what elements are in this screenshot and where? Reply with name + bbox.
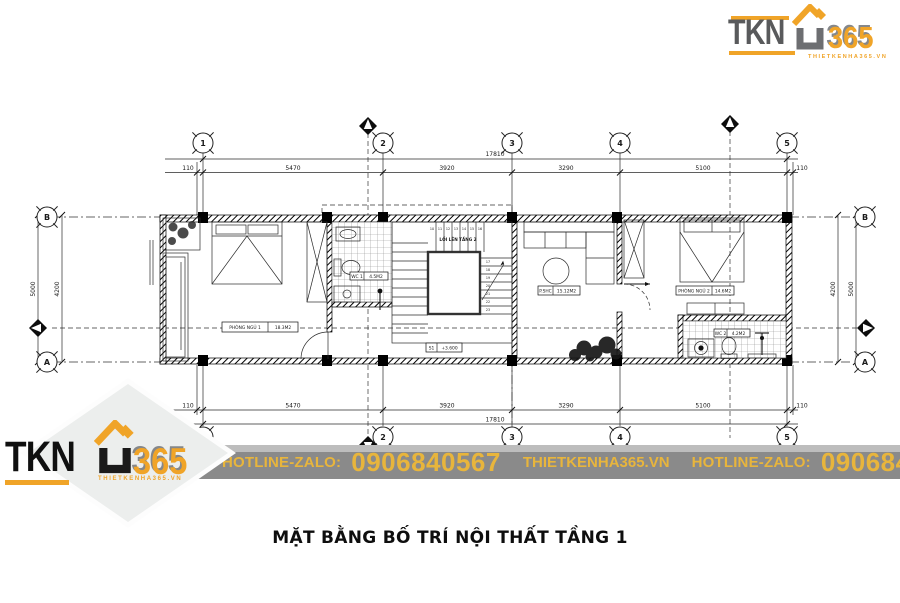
logo-tagline: THIETKENHA365.VN — [808, 54, 887, 60]
round-table-icon — [543, 258, 569, 284]
svg-text:WC 1: WC 1 — [351, 274, 363, 280]
wardrobe-icon — [624, 220, 644, 278]
hotline-label: HOTLINE-ZALO: — [222, 454, 341, 471]
svg-text:3: 3 — [509, 139, 515, 148]
hotline-phone: 0906840567 — [821, 447, 900, 478]
svg-text:S1: S1 — [429, 346, 435, 352]
svg-text:1: 1 — [200, 139, 206, 148]
logo-tkn-text: TKN — [5, 436, 75, 479]
hotline-label: HOTLINE-ZALO: — [692, 454, 811, 471]
dim-seg: 3290 — [558, 165, 573, 172]
planter-icon — [163, 218, 200, 250]
staircase: 10 11 12 13 14 15 16 17 18 19 20 21 22 2… — [392, 222, 512, 352]
plants-icon — [569, 337, 622, 362]
dim-seg: 5470 — [285, 403, 300, 410]
wardrobe-icon — [163, 253, 188, 361]
svg-text:14: 14 — [462, 227, 466, 231]
side-gate — [150, 240, 153, 285]
room-label: WC 2 4.2M2 — [714, 329, 750, 337]
svg-text:17: 17 — [486, 260, 490, 264]
room-label: P.SHC 15.12M2 — [538, 286, 580, 295]
door-arc — [624, 282, 650, 310]
svg-text:14.6M2: 14.6M2 — [715, 288, 732, 294]
logo-tagline: THIETKENHA365.VN — [98, 476, 182, 482]
stair-direction-label: LỐI LÊN TẦNG 2 — [439, 237, 476, 242]
dim-seg: 3920 — [439, 165, 454, 172]
dim-seg: 110 — [796, 165, 808, 172]
dim-right-outer: 5000 — [848, 281, 855, 296]
level-label: S1 +3.600 — [426, 343, 462, 352]
logo-365-text: 365 — [828, 22, 874, 53]
dim-seg: 110 — [182, 403, 194, 410]
svg-text:15: 15 — [470, 227, 474, 231]
dim-total-bottom: 17810 — [485, 417, 504, 424]
house-icon — [94, 420, 136, 476]
wc2: WC 2 4.2M2 — [683, 321, 786, 359]
stair-arrow — [482, 261, 504, 300]
svg-text:WC 2: WC 2 — [715, 331, 727, 337]
hotline-banner: HOTLINE-ZALO: 0906840567 THIETKENHA365.V… — [150, 445, 900, 479]
dim-seg: 3290 — [558, 403, 573, 410]
logo-tkn-text: TKN — [728, 15, 785, 50]
dim-right-inner: 4200 — [830, 281, 837, 296]
drawing-title: MẶT BẰNG BỐ TRÍ NỘI THẤT TẦNG 1 — [0, 528, 900, 548]
svg-text:4.2M2: 4.2M2 — [732, 331, 746, 337]
dimensions-bottom: 110 5470 3920 3290 5100 110 17810 — [165, 403, 808, 428]
svg-text:22: 22 — [486, 300, 490, 304]
svg-text:4: 4 — [617, 433, 623, 442]
logo-365-text: 365 — [133, 443, 187, 480]
logo-bar — [729, 51, 795, 55]
dim-seg: 110 — [796, 403, 808, 410]
svg-text:11: 11 — [438, 227, 442, 231]
sofa-icon — [524, 222, 614, 284]
svg-text:18: 18 — [486, 268, 490, 272]
bed-icon — [680, 218, 744, 282]
common-room: P.SHC 15.12M2 — [524, 222, 622, 362]
svg-text:2: 2 — [380, 433, 386, 442]
brand-logo-top-right: TKN 365 THIETKENHA365.VN — [720, 4, 900, 66]
bedroom2: PHÒNG NGỦ 2 14.6M2 — [624, 218, 744, 314]
svg-text:5: 5 — [784, 433, 790, 442]
svg-text:23: 23 — [486, 308, 490, 312]
brand-logo-bottom-left: TKN 365 THIETKENHA365.VN — [2, 416, 222, 496]
bed-icon — [212, 222, 282, 284]
stair-treads-left — [392, 243, 428, 333]
dim-total-top: 17810 — [485, 151, 504, 158]
svg-text:5: 5 — [784, 139, 790, 148]
svg-text:10: 10 — [430, 227, 434, 231]
bedroom1: PHÒNG NGỦ 1 18.3M2 — [163, 218, 328, 361]
dim-seg: 5100 — [695, 165, 710, 172]
website-text: THIETKENHA365.VN — [523, 454, 670, 471]
dim-left-outer: 5000 — [30, 281, 37, 296]
svg-text:19: 19 — [486, 276, 490, 280]
wc1: WC 1 4.5M2 — [332, 222, 392, 310]
dim-seg: 5470 — [285, 165, 300, 172]
wardrobe2-icon — [307, 222, 327, 302]
dim-seg: 110 — [182, 165, 194, 172]
door-arc — [301, 332, 328, 359]
svg-text:13: 13 — [454, 227, 458, 231]
svg-text:15.12M2: 15.12M2 — [557, 288, 576, 294]
svg-text:12: 12 — [446, 227, 450, 231]
svg-text:B: B — [44, 213, 50, 222]
svg-text:B: B — [862, 213, 868, 222]
dimensions-top: 17810 110 5470 3920 3290 5100 110 — [165, 151, 808, 176]
svg-text:18.3M2: 18.3M2 — [275, 325, 292, 331]
svg-text:P.SHC: P.SHC — [539, 288, 552, 294]
dimensions-right: 4200 5000 — [830, 212, 859, 365]
dim-seg: 3920 — [439, 403, 454, 410]
svg-text:+3.600: +3.600 — [441, 346, 457, 352]
page: 17810 110 5470 3920 3290 5100 110 110 54… — [0, 0, 900, 603]
dimensions-left: 5000 4200 — [30, 212, 65, 365]
stair-treads-right — [480, 258, 512, 314]
svg-text:A: A — [862, 358, 869, 367]
room-label: WC 1 4.5M2 — [350, 272, 388, 280]
svg-text:4.5M2: 4.5M2 — [369, 274, 383, 280]
house-icon — [792, 4, 828, 52]
svg-text:4: 4 — [617, 139, 623, 148]
svg-text:A: A — [44, 358, 51, 367]
svg-text:2: 2 — [380, 139, 386, 148]
room-label: PHÒNG NGỦ 1 18.3M2 — [222, 322, 298, 332]
room-label: PHÒNG NGỦ 2 14.6M2 — [676, 286, 734, 295]
svg-text:3: 3 — [509, 433, 515, 442]
bench-icon — [687, 303, 744, 314]
logo-bar — [5, 480, 69, 485]
svg-text:16: 16 — [478, 227, 482, 231]
dim-seg: 5100 — [695, 403, 710, 410]
hotline-phone: 0906840567 — [351, 447, 501, 478]
dim-left-inner: 4200 — [54, 281, 61, 296]
